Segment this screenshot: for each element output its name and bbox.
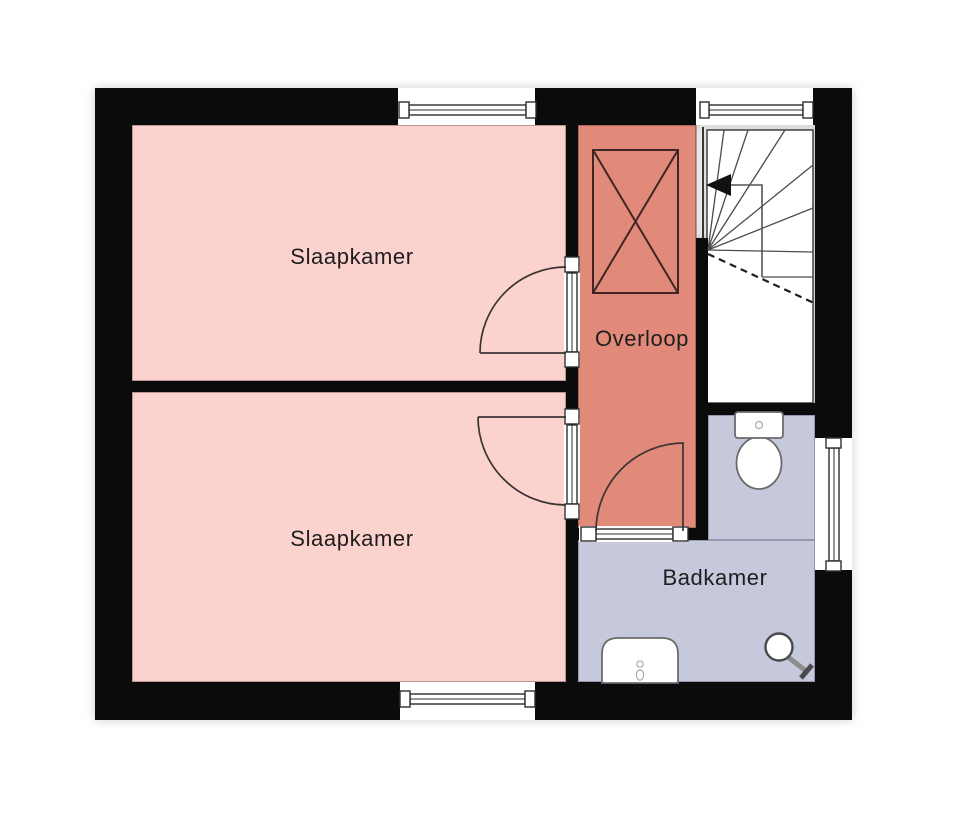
room-label-bedroom-bottom: Slaapkamer <box>290 526 413 551</box>
sink-icon <box>602 638 678 683</box>
wall-between-bedrooms <box>132 381 566 392</box>
door-cap <box>565 257 579 272</box>
floor-plan-canvas: Slaapkamer Slaapkamer Overloop Badkamer <box>0 0 960 826</box>
door-cap <box>565 504 579 519</box>
window-cap <box>400 691 410 707</box>
room-label-bathroom: Badkamer <box>662 565 767 590</box>
room-label-bedroom-top: Slaapkamer <box>290 244 413 269</box>
toilet-icon <box>735 412 783 489</box>
door-cap <box>673 527 688 541</box>
window-cap <box>700 102 709 118</box>
sink-faucet <box>637 661 643 667</box>
window-cap <box>826 561 841 571</box>
window-cap <box>803 102 813 118</box>
toilet-flush-button <box>756 422 763 429</box>
window-cap <box>399 102 409 118</box>
stairwell-area <box>707 130 813 403</box>
wall-landing-stairs <box>696 238 708 540</box>
sink-drain <box>636 670 643 680</box>
toilet-bowl <box>737 437 782 489</box>
window-top-right <box>696 88 813 125</box>
door-cap <box>581 527 596 541</box>
floor-plan: Slaapkamer Slaapkamer Overloop Badkamer <box>0 0 960 826</box>
shower-head <box>766 634 793 661</box>
door-cap <box>565 409 579 424</box>
window-cap <box>826 438 841 448</box>
window-bottom <box>400 682 535 720</box>
window-cap <box>526 102 536 118</box>
room-label-landing: Overloop <box>595 326 689 351</box>
window-cap <box>525 691 535 707</box>
wall-bedrooms-landing <box>566 125 578 682</box>
door-cap <box>565 352 579 367</box>
window-top-left <box>398 88 536 125</box>
window-right <box>815 438 852 571</box>
